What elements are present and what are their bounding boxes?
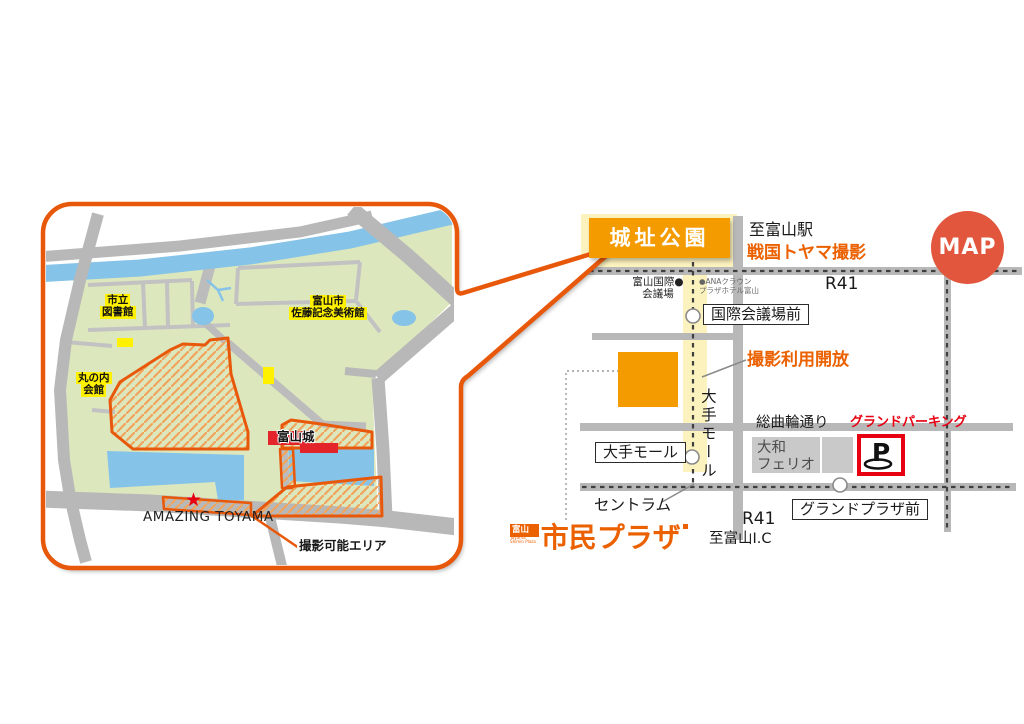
route-41-bottom-label: R41 [742, 510, 775, 530]
logo-prefix-block: 富山 Toyama Shimin Plaza [510, 524, 539, 546]
shoot-area-label: 撮影可能エリア [297, 539, 389, 553]
amazing-toyama-label: AMAZING TOYAMA [143, 510, 274, 526]
pond [192, 307, 214, 325]
museum-line1: 富山市 [310, 295, 346, 307]
marunouchi-hall-label: 丸の内 会館 [76, 372, 112, 397]
sogawa-street-label: 総曲輪通り [756, 415, 829, 432]
sengoku-shooting-note: 戦国トヤマ撮影 [747, 244, 866, 264]
road-r41-vertical [733, 216, 743, 540]
library-line1: 市立 [105, 294, 130, 306]
shimin-plaza-logo: 富山 Toyama Shimin Plaza 市民プラザ [510, 524, 688, 552]
otemall-street-label: 大手モール [698, 388, 716, 481]
yellow-building-1 [117, 338, 133, 347]
daiwa-line2: フェリオ [757, 457, 815, 473]
intl-center-line1: 富山国際● [632, 276, 683, 288]
intl-center-line2: 会議場 [642, 288, 674, 300]
logo-name: 市民プラザ [541, 524, 681, 552]
centram-label: セントラム [594, 497, 671, 515]
callout-bubble [36, 204, 607, 568]
stop-otemall-label: 大手モール [595, 442, 686, 463]
logo-sub-line2: Shimin Plaza [510, 541, 536, 545]
plaza-building [618, 352, 678, 407]
parking-p-icon: P [859, 438, 903, 468]
stop-kokusai-label: 国際会議場前 [703, 304, 809, 325]
hotel-line2: プラザホテル富山 [699, 286, 759, 295]
photo-zone-corridor [280, 449, 295, 488]
map-graphics [0, 0, 1024, 724]
to-station-label: 至富山駅 [749, 221, 813, 239]
library-label: 市立 図書館 [100, 294, 136, 319]
library-line2: 図書館 [100, 306, 136, 318]
museum-label: 富山市 佐藤記念美術館 [288, 295, 368, 320]
hall-line2: 会館 [81, 384, 106, 396]
stop-otemall-circle [685, 450, 699, 464]
yellow-building-2 [263, 367, 274, 384]
daiwa-line1: 大和 [757, 440, 786, 456]
pond-east [392, 310, 416, 326]
toyama-castle-building-2 [300, 443, 338, 453]
ana-hotel-label: ●ANAクラウン プラザホテル富山 [699, 277, 759, 295]
toyama-castle-label: 富山城 [277, 430, 315, 444]
open-for-shooting-note: 撮影利用開放 [747, 351, 849, 371]
museum-line2: 佐藤記念美術館 [289, 307, 367, 319]
building-block [822, 437, 853, 473]
stop-grand-plaza-circle [833, 478, 847, 492]
hall-line1: 丸の内 [76, 372, 112, 384]
park-name-box: 城址公園 [589, 218, 730, 258]
to-toyama-ic-label: 至富山I.C [709, 531, 772, 548]
logo-prefix: 富山 [510, 524, 539, 537]
road-short [592, 333, 733, 340]
daiwa-ferio-label: 大和 フェリオ [757, 440, 815, 473]
logo-dot [683, 524, 688, 529]
amazing-toyama-star-icon: ★ [185, 491, 202, 510]
hotel-line1: ●ANAクラウン [699, 277, 751, 286]
grand-parking-label: グランドパーキング [850, 416, 967, 431]
map-badge: MAP [931, 211, 1004, 284]
access-map: 城址公園 至富山駅 戦国トヤマ撮影 MAP R41 富山国際● 会議場 ●ANA… [0, 0, 1024, 724]
stop-grand-plaza-label: グランドプラザ前 [792, 499, 928, 520]
intl-conference-center-label: 富山国際● 会議場 [626, 277, 690, 300]
route-41-top-label: R41 [825, 275, 858, 295]
stop-kokusai-circle [686, 309, 700, 323]
